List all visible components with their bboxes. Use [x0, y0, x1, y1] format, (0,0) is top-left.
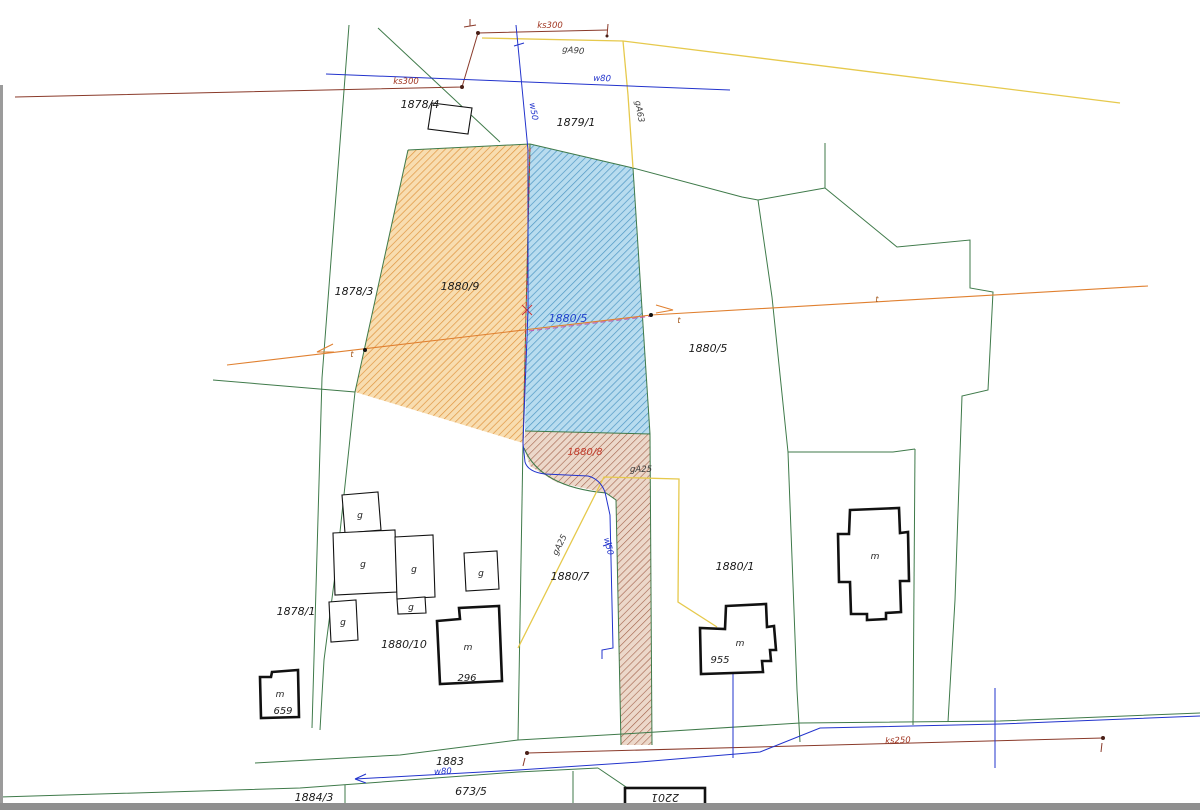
parcel-label-1880-5: 1880/5 — [689, 342, 728, 355]
cadastral-map-page: 1878/4 1879/1 1878/3 1880/9 1880/5 1880/… — [0, 0, 1200, 810]
parcel-label-1880-5-blue: 1880/5 — [549, 312, 588, 325]
garage-label: g — [411, 565, 417, 575]
parcel-label-673-5: 673/5 — [455, 785, 487, 798]
parcel-label-1880-7: 1880/7 — [551, 570, 590, 583]
parcel-label-1880-1: 1880/1 — [716, 560, 755, 573]
power-t-marker: t — [677, 316, 681, 325]
parcel-label-1878-1: 1878/1 — [277, 605, 316, 618]
gas-label-ga25: gA25 — [630, 465, 652, 475]
gas-label-ga25: gA25 — [551, 533, 570, 557]
house-number-296: 296 — [457, 673, 476, 684]
house-label: m — [464, 643, 473, 653]
parcel-label-1880-10: 1880/10 — [381, 638, 427, 651]
parcel-label-1879-1: 1879/1 — [557, 116, 596, 129]
water-label-w80: w80 — [593, 74, 611, 85]
garage-label: g — [357, 511, 363, 521]
parcel-label-1878-3: 1878/3 — [335, 285, 374, 298]
page-edge-left — [0, 85, 3, 810]
power-t-marker: t — [875, 295, 879, 304]
parcel-label-1880-9: 1880/9 — [441, 280, 480, 293]
house-label: m — [736, 639, 745, 649]
building-right-m — [838, 508, 909, 620]
garage-label: g — [408, 603, 414, 613]
garage-label: g — [478, 569, 484, 579]
house-label: m — [871, 552, 880, 562]
parcel-label-1880-8: 1880/8 — [567, 447, 602, 458]
garage-label: g — [360, 560, 366, 570]
house-label: m — [276, 690, 285, 700]
house-number-955: 955 — [710, 655, 729, 666]
cadastral-map-canvas[interactable]: 1878/4 1879/1 1878/3 1880/9 1880/5 1880/… — [0, 0, 1200, 810]
sewer-label-ks250: ks250 — [885, 736, 911, 747]
page-edge-bottom — [0, 803, 1200, 810]
water-label-w80: w80 — [434, 767, 452, 778]
power-t-marker: t — [350, 350, 354, 359]
water-label-w50: w50 — [601, 537, 615, 557]
water-label-w50: w50 — [527, 102, 540, 121]
parcel-1880-9-hatched — [355, 144, 530, 443]
parcel-label-1878-4: 1878/4 — [401, 98, 440, 111]
house-number-659: 659 — [273, 706, 292, 717]
parcel-1880-5-hatched — [525, 144, 650, 434]
sewer-label-ks300: ks300 — [393, 77, 419, 87]
gas-label-ga63: gA63 — [632, 100, 646, 123]
sewer-label-ks300: ks300 — [537, 21, 563, 31]
garage-label: g — [340, 618, 346, 628]
gas-label-ga90: gA90 — [562, 45, 585, 57]
